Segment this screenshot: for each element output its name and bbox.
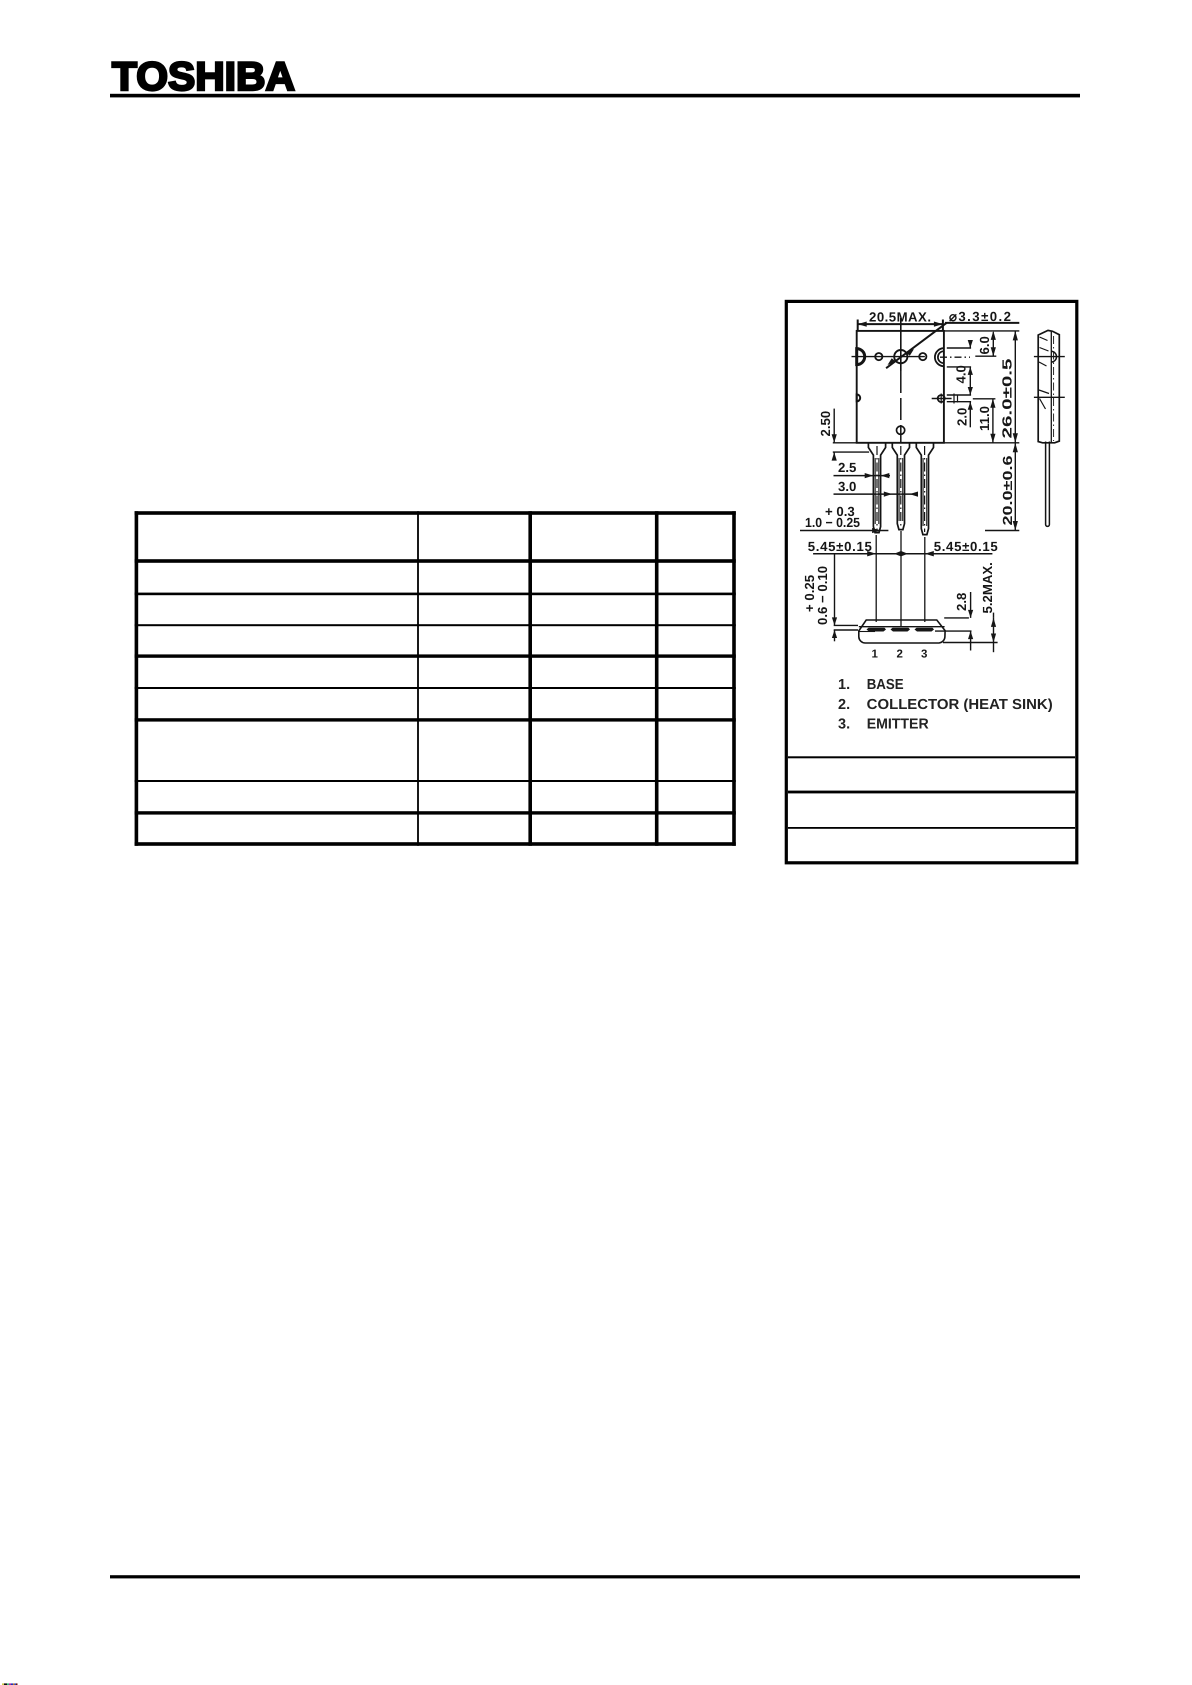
svg-text:11.0: 11.0 xyxy=(977,406,992,431)
svg-text:2.0: 2.0 xyxy=(955,408,970,426)
svg-text:26.0±0.5: 26.0±0.5 xyxy=(1000,359,1015,439)
svg-text:2.50: 2.50 xyxy=(818,411,833,437)
svg-text:2.5: 2.5 xyxy=(838,460,856,475)
svg-text:5.45±0.15: 5.45±0.15 xyxy=(934,539,998,554)
svg-text:BASE: BASE xyxy=(867,677,904,693)
svg-text:5.2MAX.: 5.2MAX. xyxy=(980,562,995,613)
svg-text:1: 1 xyxy=(872,649,879,661)
svg-text:1.0 − 0.25: 1.0 − 0.25 xyxy=(805,515,860,530)
svg-text:COLLECTOR (HEAT SINK): COLLECTOR (HEAT SINK) xyxy=(867,697,1053,713)
svg-text:3.0: 3.0 xyxy=(838,479,856,494)
svg-text:3.: 3. xyxy=(838,717,850,733)
svg-text:2.8: 2.8 xyxy=(954,593,969,611)
svg-text:0.6 − 0.10: 0.6 − 0.10 xyxy=(815,566,830,625)
svg-text:3: 3 xyxy=(921,649,927,661)
svg-text:4.0: 4.0 xyxy=(954,365,969,383)
svg-text:2: 2 xyxy=(897,649,903,661)
svg-text:EMITTER: EMITTER xyxy=(867,717,930,733)
svg-text:20.0±0.6: 20.0±0.6 xyxy=(1000,456,1015,526)
svg-text:2.: 2. xyxy=(838,697,850,713)
svg-text:6.0: 6.0 xyxy=(977,336,992,354)
svg-text:1.: 1. xyxy=(838,677,850,693)
svg-text:TOSHIBA: TOSHIBA xyxy=(112,55,295,99)
svg-text:5.45±0.15: 5.45±0.15 xyxy=(808,539,872,554)
